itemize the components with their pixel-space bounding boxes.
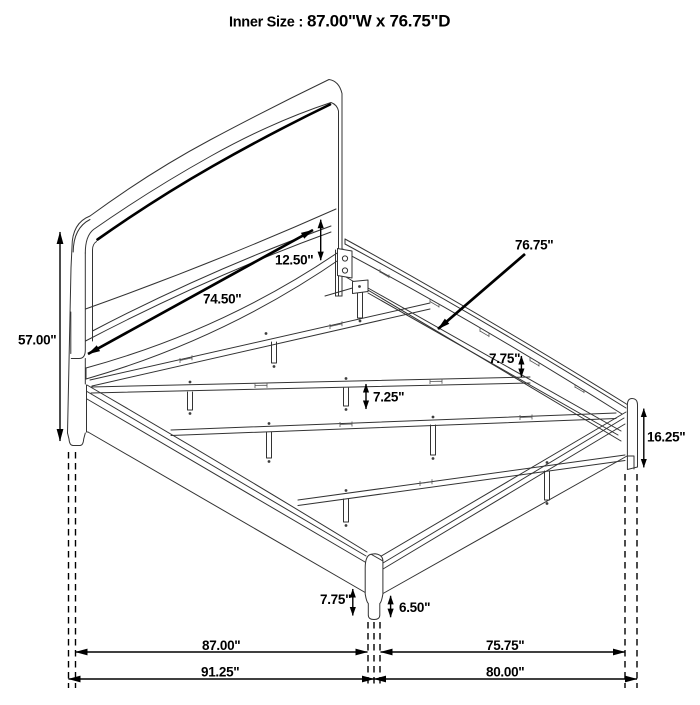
svg-text:6.50": 6.50" [399,600,430,615]
svg-text:7.75": 7.75" [320,592,351,607]
svg-text:7.25": 7.25" [373,390,404,405]
svg-text:80.00": 80.00" [486,665,524,680]
svg-text:16.25": 16.25" [647,430,685,445]
svg-text:74.50": 74.50" [203,292,241,307]
svg-text:57.00": 57.00" [18,333,56,348]
svg-text:7.75": 7.75" [489,351,520,366]
svg-text:91.25": 91.25" [201,665,239,680]
svg-text:Inner Size : 87.00"W x 76.75"D: Inner Size : 87.00"W x 76.75"D [229,12,450,31]
svg-text:87.00": 87.00" [202,638,240,653]
svg-text:75.75": 75.75" [486,638,524,653]
svg-text:76.75": 76.75" [515,238,553,253]
svg-text:12.50": 12.50" [275,253,313,268]
